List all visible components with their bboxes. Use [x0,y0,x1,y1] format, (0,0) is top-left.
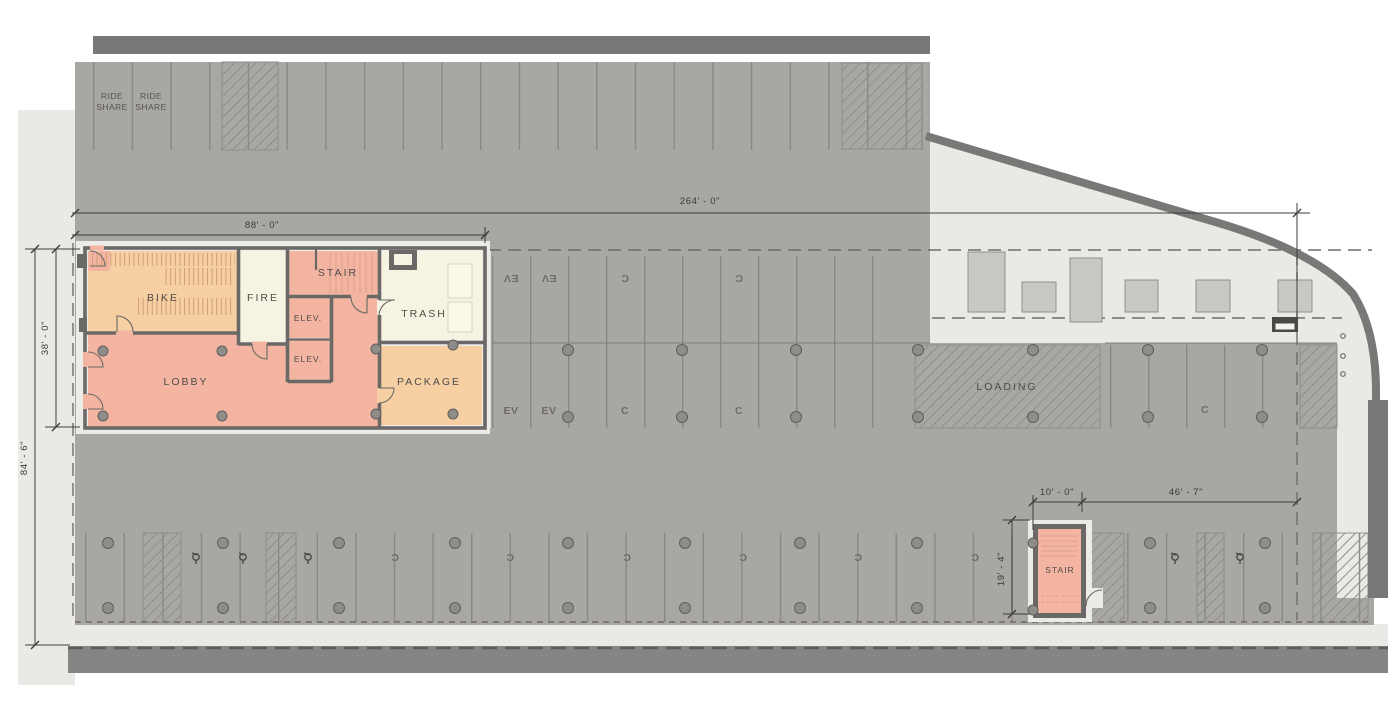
stall-lines-middle-upper [492,256,910,343]
dim-core-length: 88' - 0" [245,220,279,231]
compact-stall-label: C [971,551,979,563]
dim-stair-offset: 46' - 7" [1169,487,1203,498]
hatched-stall [842,63,922,149]
south-stair-label: STAIR [1045,565,1074,575]
south-band [68,646,1388,673]
ride-share-stall-label: SHARE [135,102,166,112]
compact-stall-label: C [621,405,629,417]
wall-pier [77,254,87,268]
stair-room-label: STAIR [318,267,358,279]
dim-core-depth: 38' - 0" [40,321,51,355]
compact-stall-label: C [623,551,631,563]
ev-stall-label: EV [541,272,556,284]
fixture [1196,280,1230,312]
ride-share-stall-label: RIDE [140,91,162,101]
sidewalk-left [18,110,75,685]
hatched-stall [1087,533,1124,622]
ev-stall-label: EV [541,405,556,417]
door-opening [377,388,382,403]
ev-stall-label: EV [503,272,518,284]
hatched-stall [1300,345,1337,428]
compact-stall-label: C [735,405,743,417]
ride-share-stall-label: SHARE [96,102,127,112]
hatched-stall [143,533,181,622]
building-core: BIKE FIRE STAIR ELEV. ELEV. TRASH LOBBY … [76,241,490,434]
fixture [1022,282,1056,312]
parking-floor-plan: RIDE SHARE RIDE SHARE LOADING EV EV C C … [0,0,1395,720]
dim-overall-depth: 84' - 6" [19,441,30,475]
lobby-room-label: LOBBY [163,376,208,388]
trash-room-label: TRASH [401,308,447,320]
east-wall [1368,400,1388,598]
fire-room-label: FIRE [247,292,279,304]
compact-stall-label: C [735,272,743,284]
fixture [1070,258,1102,322]
elevator-label: ELEV. [294,354,322,364]
compact-stall-label: C [506,551,514,563]
dim-stair-width: 10' - 0" [1040,487,1074,498]
elevator-label: ELEV. [294,313,322,323]
bike-room-label: BIKE [147,292,179,304]
compact-stall-label: C [854,551,862,563]
stall-lines-north [93,62,922,150]
ride-share-stall-label: RIDE [101,91,123,101]
trash-bin [448,302,472,332]
hatched-stall [266,533,296,622]
hatched-stall [1197,533,1224,622]
hatched-stall [1313,533,1368,622]
trash-bin [448,264,472,298]
floor-plan-svg: RIDE SHARE RIDE SHARE LOADING EV EV C C … [0,0,1395,720]
compact-stall-label: C [739,551,747,563]
compact-stall-label: C [1201,404,1209,416]
fixture [1125,280,1158,312]
hatched-stall [222,62,278,150]
dim-overall-length: 264' - 0" [680,196,720,207]
trash-chute-opening [394,254,412,265]
compact-stall-label: C [391,551,399,563]
package-room-label: PACKAGE [397,376,461,388]
loading-zone-label: LOADING [976,381,1037,393]
parking-row-south: C C C C C C [85,533,1368,622]
sidewalk-bottom [62,624,1388,646]
north-wall [93,36,930,54]
compact-stall-label: C [621,272,629,284]
fixture [1278,280,1312,312]
ev-stall-label: EV [503,405,518,417]
wall-pier [79,318,87,332]
south-stair: STAIR [1028,520,1103,622]
parking-row-north: RIDE SHARE RIDE SHARE [93,62,922,150]
fixture [968,252,1005,312]
gate-equipment [1272,317,1298,332]
dim-stair-depth: 19' - 4" [996,552,1007,586]
